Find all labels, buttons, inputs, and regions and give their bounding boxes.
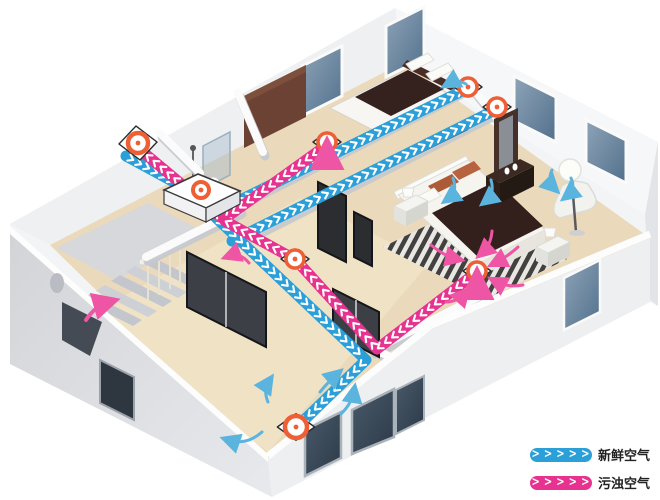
table-lamp <box>544 228 556 237</box>
perfume-bottle <box>513 164 518 171</box>
perfume-bottle <box>505 168 510 175</box>
ventilation-floorplan: >>>>> 新鲜空气 >>>>> 污浊空气 <box>0 0 660 500</box>
legend-fresh-air: >>>>> 新鲜空气 <box>530 445 650 464</box>
fresh-air-duct-icon: >>>>> <box>530 448 592 462</box>
hrv-unit-vent-dot <box>199 188 204 193</box>
table-lamp <box>402 188 414 197</box>
hall-door-leaf <box>354 212 372 266</box>
stale-air-duct-icon: >>>>> <box>530 476 592 490</box>
legend-stale-label: 污浊空气 <box>598 473 650 492</box>
legend-stale-air: >>>>> 污浊空气 <box>530 473 650 492</box>
floor-lamp-base <box>569 230 585 236</box>
shower-head <box>190 145 196 151</box>
wall-hole <box>50 273 64 293</box>
floorplan-svg <box>0 0 660 500</box>
legend: >>>>> 新鲜空气 >>>>> 污浊空气 <box>530 445 650 492</box>
legend-fresh-label: 新鲜空气 <box>598 445 650 464</box>
